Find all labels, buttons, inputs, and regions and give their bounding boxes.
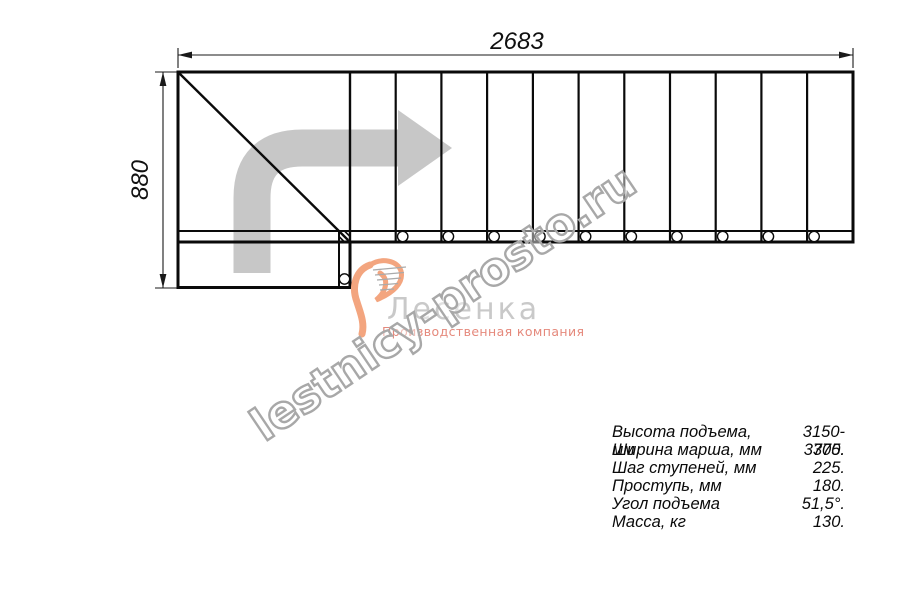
spec-row: Масса, кг 130. <box>612 513 845 531</box>
company-logo: Лесенка Производственная компания <box>346 256 606 346</box>
height-dimension-label: 880 <box>127 159 154 200</box>
spec-label: Масса, кг <box>612 513 686 531</box>
spec-label: Проступь, мм <box>612 477 722 495</box>
spec-label: Ширина марша, мм <box>612 441 762 459</box>
hatch-mark <box>339 231 350 242</box>
spec-value: 3150-3375. <box>767 423 845 441</box>
spec-label: Высота подъема, мм <box>612 423 767 441</box>
direction-arrow-icon <box>252 110 452 273</box>
logo-tagline: Производственная компания <box>382 324 584 339</box>
spec-row: Угол подъема 51,5°. <box>612 495 845 513</box>
spec-label: Угол подъема <box>612 495 720 513</box>
logo-name: Лесенка <box>387 292 540 327</box>
width-dimension-label: 2683 <box>489 28 544 55</box>
step-lines <box>396 72 807 242</box>
left-dimension: 880 <box>127 72 178 288</box>
stair-drawing-page: { "dimensions": { "width_mm": "2683", "h… <box>0 0 900 600</box>
spec-row: Высота подъема, мм 3150-3375. <box>612 423 845 441</box>
spec-table: Высота подъема, мм 3150-3375. Ширина мар… <box>612 423 845 531</box>
spec-row: Проступь, мм 180. <box>612 477 845 495</box>
spec-value: 130. <box>813 513 845 531</box>
spec-row: Шаг ступеней, мм 225. <box>612 459 845 477</box>
spec-value: 225. <box>813 459 845 477</box>
top-dimension: 2683 <box>178 28 853 68</box>
spec-value: 180. <box>813 477 845 495</box>
spec-value: 51,5°. <box>802 495 845 513</box>
spec-label: Шаг ступеней, мм <box>612 459 756 477</box>
spec-value: 700. <box>813 441 845 459</box>
